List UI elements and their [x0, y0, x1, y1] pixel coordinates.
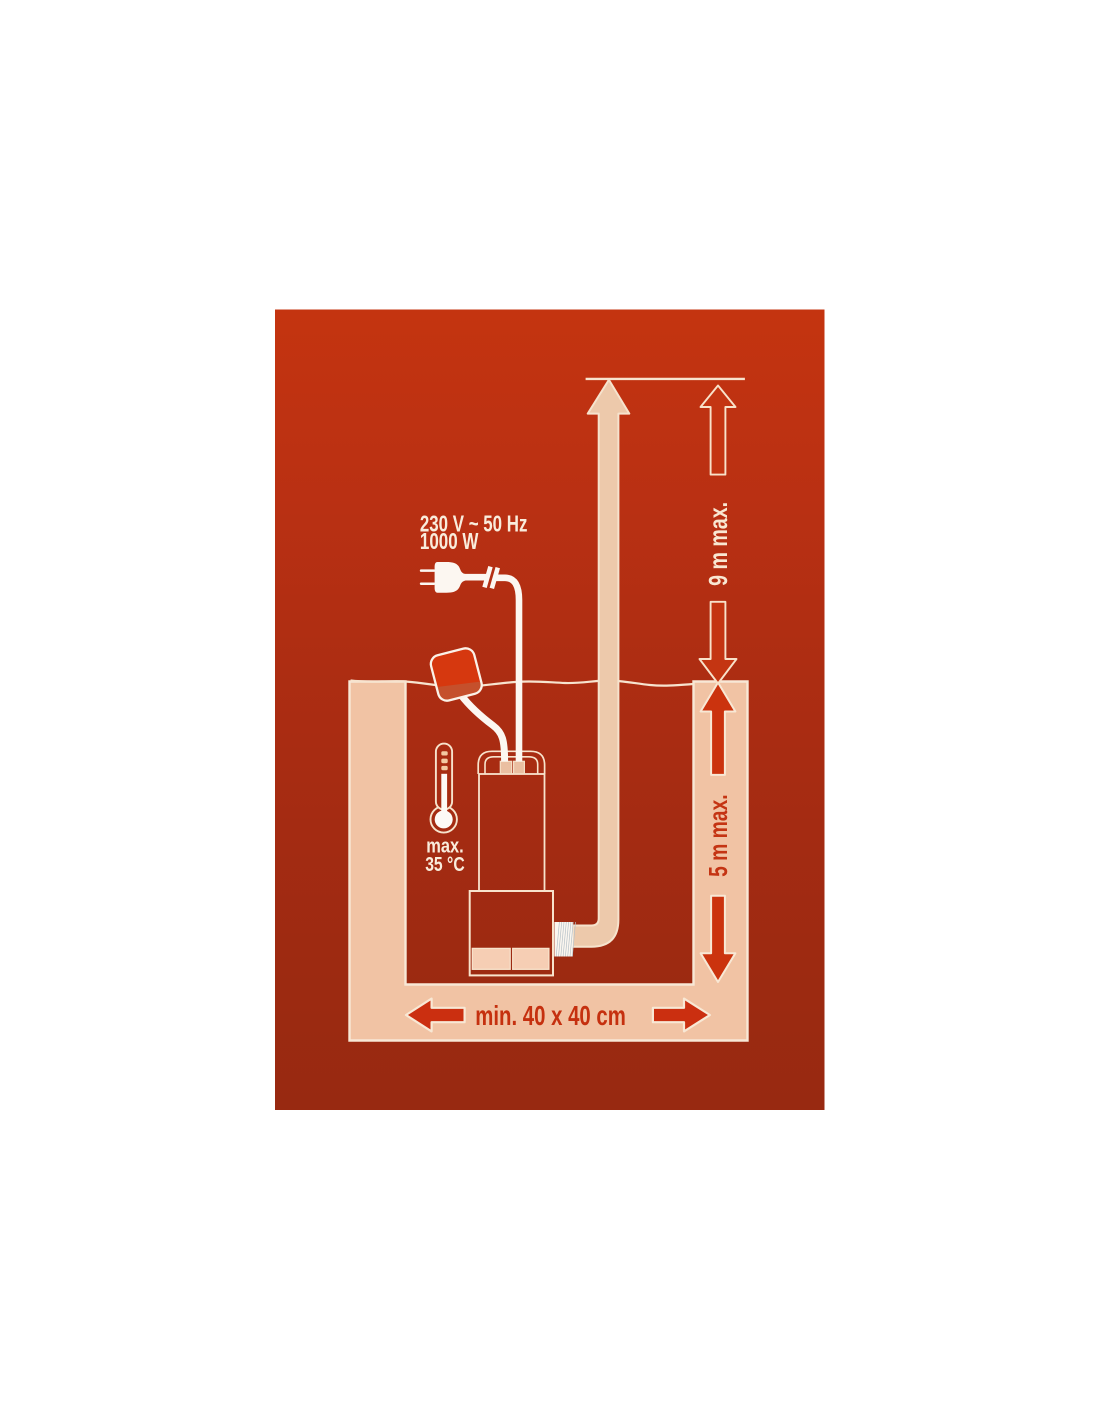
svg-text:9 m max.: 9 m max.	[703, 502, 733, 586]
svg-text:1000 W: 1000 W	[420, 528, 479, 554]
svg-text:min. 40 x 40 cm: min. 40 x 40 cm	[475, 1000, 626, 1031]
svg-text:5 m max.: 5 m max.	[703, 794, 733, 877]
svg-text:35 °C: 35 °C	[425, 854, 465, 876]
